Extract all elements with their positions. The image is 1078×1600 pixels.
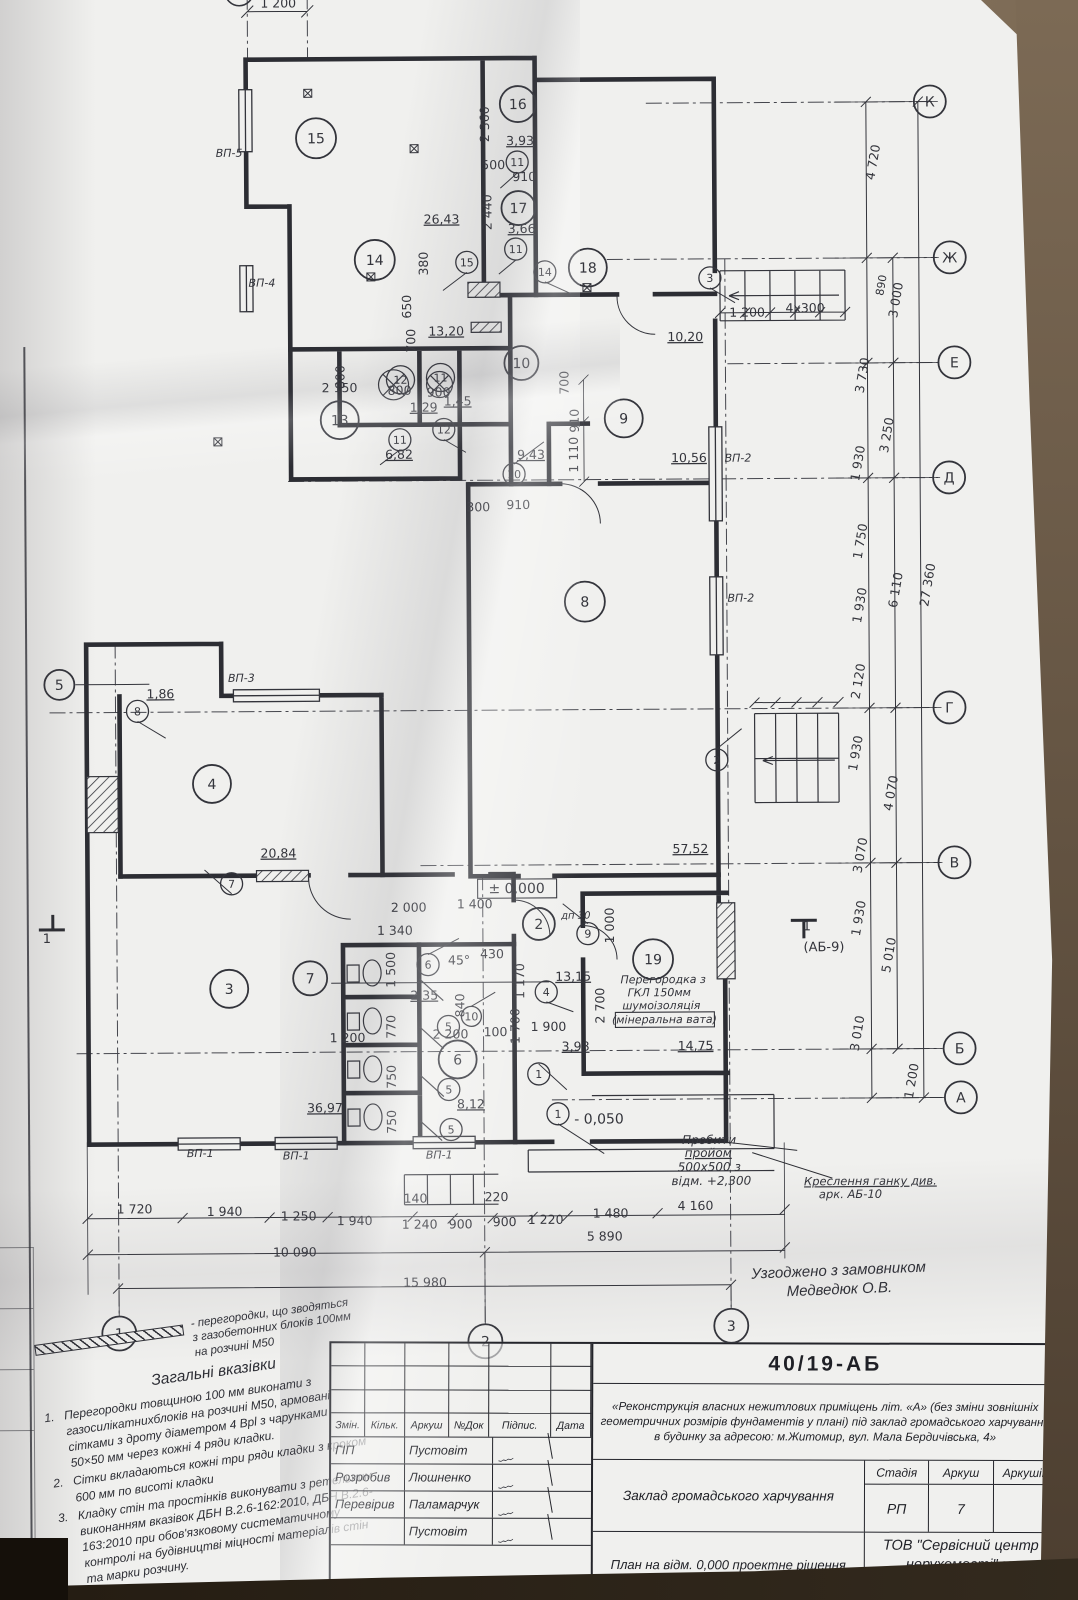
dimension-label: 1 200 [330, 1030, 366, 1045]
dimension-label: 2 360 [477, 106, 492, 142]
revision-grid [331, 1343, 591, 1414]
dimension-label: 3 010 [847, 1014, 868, 1052]
signature-row: Розробив Люшненко ﹏ [331, 1464, 591, 1492]
axis-marker-label: 3 [727, 1319, 736, 1335]
dimension-label: 1 900 [531, 1019, 567, 1034]
dimension-label: 1 340 [377, 923, 413, 938]
annotation: Перегородка з [620, 973, 706, 987]
area-label: 14,75 [678, 1038, 714, 1053]
dimension-label: 1 930 [845, 734, 866, 772]
door-number-label: 10 [507, 468, 521, 481]
axis-marker-label: Д [944, 470, 955, 486]
dimension-label: 100 [484, 1024, 508, 1039]
object-name: Заклад громадського харчування [593, 1460, 864, 1533]
axis-marker-label: В [950, 855, 960, 871]
dimension-label: 910 [506, 497, 530, 512]
dimension-label: 1 940 [207, 1204, 243, 1219]
wall-type-label: ВП-1 [187, 1147, 214, 1160]
dimension-label: 2 700 [592, 988, 607, 1024]
wall-type-label: ВП-1 [283, 1149, 310, 1162]
dimension-label: 750 [384, 1110, 399, 1134]
room-number-label: 7 [306, 971, 315, 987]
annotation: пройом [685, 1146, 732, 1160]
stage-header-row: Стадія Аркуш Аркушів [865, 1461, 1057, 1486]
dimension-label: 3,93 [506, 133, 534, 148]
area-label: 10,20 [667, 329, 703, 344]
document-number: 40/19-АБ [593, 1344, 1057, 1385]
annotation: ГКЛ 150мм [628, 986, 691, 999]
section-mark: 1 [43, 932, 51, 947]
sheet-number: 7 [929, 1485, 993, 1532]
area-label: 10,56 [671, 450, 707, 465]
dimension-label: 2,35 [410, 988, 438, 1003]
title-block-main: 40/19-АБ «Реконструкція власних нежитлов… [593, 1344, 1058, 1597]
dimension-label: 140 [404, 1191, 428, 1206]
dimension-label: 500 [481, 157, 505, 172]
dimension-label: 1 000 [602, 908, 617, 944]
room-number-label: 8 [580, 595, 589, 611]
dimension-label: 1 200 [260, 0, 296, 11]
area-label: 57,52 [672, 841, 708, 856]
photo-of-drawing: 1 2002 3603,935009102 4403,6626,43380650… [0, 0, 1078, 1600]
dimension-label: 4x300 [785, 300, 824, 315]
room-number-label: 17 [510, 201, 528, 217]
dimension-label: 45° [448, 952, 470, 967]
dimension-label: 3 730 [852, 356, 873, 394]
dimension-label: 3,98 [562, 1039, 590, 1054]
room-number-label: 4 [207, 777, 216, 793]
dimension-label: 430 [480, 946, 504, 961]
dimension-label: 770 [383, 1015, 398, 1039]
dimension-label: 700 [403, 329, 418, 353]
door-number-label: 5 [445, 1083, 452, 1096]
axis-marker-label: Е [950, 355, 959, 371]
dimension-label: 2 440 [479, 194, 494, 230]
dimension-label: 1 400 [457, 896, 493, 911]
axis-marker-label: Б [955, 1041, 965, 1057]
door-number-label: 11 [509, 243, 523, 256]
section-mark: (АБ-9) [803, 940, 844, 955]
dimension-label: 900 [493, 1214, 517, 1229]
margin-stamp-grid [0, 1247, 36, 1548]
annotation: відм. +2,300 [671, 1174, 751, 1188]
title-block: Змін. Кільк. Аркуш №Док Підпис. Дата ГІП… [329, 1341, 1060, 1599]
area-label: 6,82 [385, 447, 413, 462]
dimension-label: 2 000 [391, 900, 427, 915]
room-number-label: 3 [225, 982, 234, 998]
area-label: 13,20 [428, 323, 464, 338]
door-number-label: 8 [134, 705, 141, 718]
dimension-label: 4 720 [862, 143, 883, 181]
room-number-label: 14 [366, 253, 384, 269]
dimension-label: 1 480 [593, 1205, 629, 1220]
signature-row: Перевірив Паламарчук ﹏ [331, 1491, 591, 1519]
signature-row: Пустовіт ﹏ [331, 1518, 591, 1546]
dimension-label: 5 890 [587, 1228, 623, 1243]
annotation: шумоізоляція [622, 999, 701, 1012]
dimension-label: 1 930 [847, 444, 868, 482]
dimension-label: 700 [556, 371, 571, 395]
dimension-label: 1 500 [383, 952, 398, 988]
drawing-title: План на відм. 0,000 проектне рішення [593, 1532, 864, 1597]
dimension-label: 2 150 [322, 380, 358, 395]
axis-marker-label: А [956, 1090, 966, 1106]
annotation: 500х500 з [678, 1160, 741, 1174]
dimension-label: 1 220 [528, 1212, 564, 1227]
area-label: 20,84 [260, 845, 296, 860]
door-number-label: 1 [535, 1068, 542, 1081]
dimension-label: 900 [449, 1216, 473, 1231]
wall-type-label: ВП-4 [248, 277, 275, 290]
dimension-label: 1,29 [410, 400, 438, 415]
room-number-label: 19 [644, 952, 662, 968]
room-number-label: 2 [534, 917, 543, 933]
room-number-label: 12 [393, 374, 407, 387]
axis-marker-label: К [925, 94, 935, 110]
dimension-label: 1 200 [729, 305, 765, 320]
door-number-label: 6 [425, 959, 432, 972]
organization-name: ТОВ "Сервісний центр нерухомості" м. Жит… [865, 1533, 1057, 1598]
dimension-label: 27 360 [916, 562, 938, 608]
dimension-label: дп 30 [560, 911, 590, 922]
room-number-label: 10 [512, 356, 530, 372]
level-mark: ± 0,000 [488, 881, 544, 897]
signature-row: ГІП Пустовіт ﹏ [331, 1437, 591, 1465]
dimension-label: 1 700 [507, 1008, 522, 1044]
wall-type-label: ВП-1 [426, 1148, 453, 1161]
level-mark: - 0,050 [574, 1111, 624, 1127]
area-label: 36,97 [307, 1100, 343, 1115]
door-number-label: 11 [510, 156, 524, 169]
dimension-label: 1 930 [849, 586, 870, 624]
area-label: 13,15 [555, 969, 591, 984]
dimension-label: 220 [485, 1189, 509, 1204]
dimension-label: 1 940 [337, 1213, 373, 1228]
room-number-label: 11 [433, 371, 447, 384]
dimension-label: 1,86 [146, 686, 174, 701]
door-number-label: 7 [228, 878, 235, 891]
area-label: 9,43 [517, 447, 545, 462]
door-number-label: 3 [706, 272, 713, 285]
signature-table: Змін. Кільк. Аркуш №Док Підпис. Дата ГІП… [331, 1343, 594, 1596]
dimension-label: 650 [399, 295, 414, 319]
stage-values-row: РП 7 [865, 1485, 1057, 1534]
dimension-label: 1 110 [566, 437, 581, 473]
room-number-label: 9 [619, 411, 628, 427]
dimension-label: 4 160 [678, 1198, 714, 1213]
dimension-label: 1 720 [117, 1201, 153, 1216]
room-number-label: 13 [331, 413, 349, 429]
annotation: (мінеральна вата) [612, 1013, 717, 1027]
door-number-label: 2 [713, 754, 720, 767]
dimension-label: 6 110 [885, 571, 906, 609]
dimension-label: 300 [466, 499, 490, 514]
dimension-label: 750 [384, 1065, 399, 1089]
stage-value: РП [865, 1485, 929, 1532]
stairs [399, 270, 851, 1205]
dimension-label: 890 [873, 274, 889, 297]
axis-marker-label: 5 [55, 678, 64, 694]
drawing-sheet: 1 2002 3603,935009102 4403,6626,43380650… [0, 0, 1070, 1587]
dimension-label: 3 000 [885, 281, 906, 319]
door-number-label: 1 [554, 1108, 561, 1121]
room-number-label: 16 [509, 97, 527, 113]
dimension-label: 1 200 [901, 1062, 922, 1100]
axis-marker [225, 0, 253, 6]
door-number-label: 10 [464, 1010, 478, 1023]
project-description: «Реконструкція власних нежитлових приміщ… [593, 1384, 1057, 1461]
dimension-label: 1 930 [848, 899, 869, 937]
sheets-total [994, 1485, 1057, 1532]
dimension-label: 380 [416, 252, 431, 276]
dimension-label: 1 750 [850, 522, 871, 560]
area-label: 8,12 [457, 1096, 485, 1111]
axis-marker-label: Ж [942, 250, 957, 266]
agreement-line2: Медведюк О.В. [786, 1279, 892, 1300]
dimension-label: 10 090 [273, 1244, 317, 1259]
signature-header-row: Змін. Кільк. Аркуш №Док Підпис. Дата [331, 1413, 591, 1438]
door-number-label: 12 [437, 423, 451, 436]
axis-marker-label: Г [945, 700, 954, 716]
room-number-label: 18 [579, 261, 597, 277]
room-number-label: 15 [307, 131, 325, 147]
door-number-label: 15 [460, 256, 474, 269]
door-number-label: 11 [393, 434, 407, 447]
wall-type-label: ВП-2 [725, 452, 752, 465]
dimension-label: 15 980 [403, 1275, 447, 1290]
door-number-label: 5 [445, 1020, 452, 1033]
dimension-label: 1,45 [444, 393, 472, 408]
door-number-label: 9 [584, 928, 591, 941]
dimension-label: 3 070 [850, 836, 871, 874]
door-number-label: 5 [448, 1123, 455, 1136]
wall-type-label: ВП-3 [228, 672, 255, 685]
room-number-label: 6 [453, 1052, 462, 1068]
annotation: арк. АБ-10 [819, 1187, 882, 1201]
door-number-label: 14 [538, 266, 552, 279]
dimension-label: 1 250 [281, 1208, 317, 1223]
dimension-label: 1 240 [402, 1217, 438, 1232]
door-number-label: 4 [543, 986, 550, 999]
dimension-label: 4 070 [880, 774, 901, 812]
dimension-label: 5 010 [878, 936, 899, 974]
section-mark: 1 [803, 919, 811, 934]
dimension-label: 2 120 [848, 662, 869, 700]
dimension-label: 1 170 [512, 963, 527, 999]
area-label: 26,43 [424, 211, 460, 226]
wall-type-label: ВП-2 [727, 592, 754, 605]
wall-type-label: ВП-5 [216, 147, 243, 160]
dimension-label: 910 [567, 409, 582, 433]
fixtures [343, 369, 457, 1141]
